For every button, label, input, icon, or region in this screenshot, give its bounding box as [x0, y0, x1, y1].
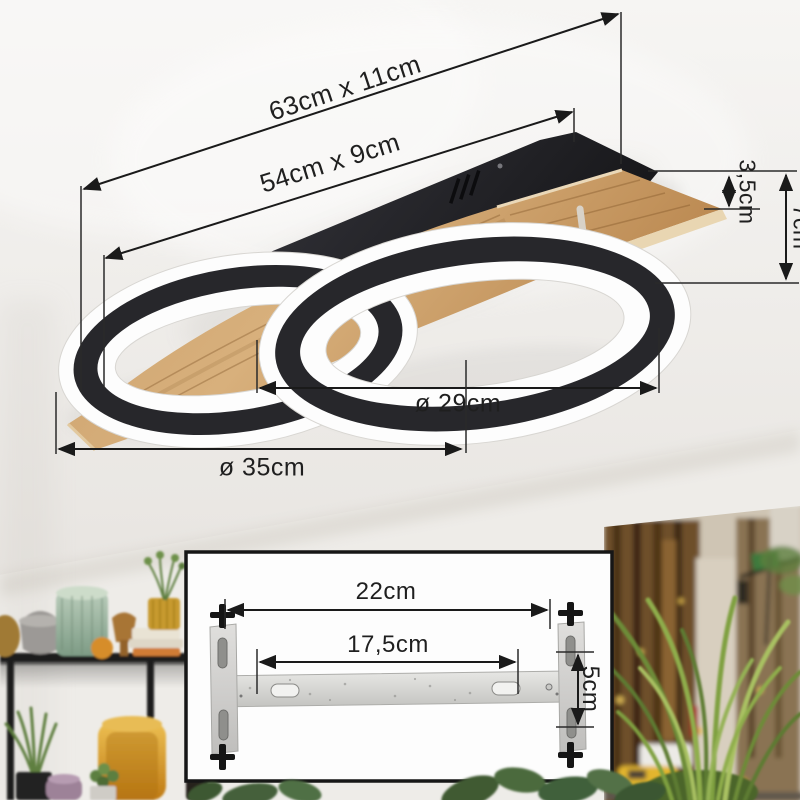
dim-bracket-outer-label: 22cm	[356, 578, 417, 606]
orange-fruit	[91, 637, 113, 659]
bracket-slot-right	[492, 682, 520, 695]
dim-thickness-label: 3,5cm	[734, 159, 761, 224]
wall-art-picture	[604, 505, 800, 800]
dim-bracket-holes-label: 17,5cm	[347, 631, 429, 659]
product-image: 63cm x 11cm 54cm x 9cm 3,5cm 7cm ø 29cm …	[0, 0, 800, 800]
bracket-slot-left	[271, 684, 299, 697]
dim-ring-left-label: ø 35cm	[219, 454, 305, 483]
dim-height-label: 7cm	[788, 205, 800, 250]
scene-svg	[0, 0, 800, 800]
dim-ring-right-label: ø 29cm	[415, 390, 501, 419]
dim-bracket-height-label: 5cm	[576, 666, 604, 713]
